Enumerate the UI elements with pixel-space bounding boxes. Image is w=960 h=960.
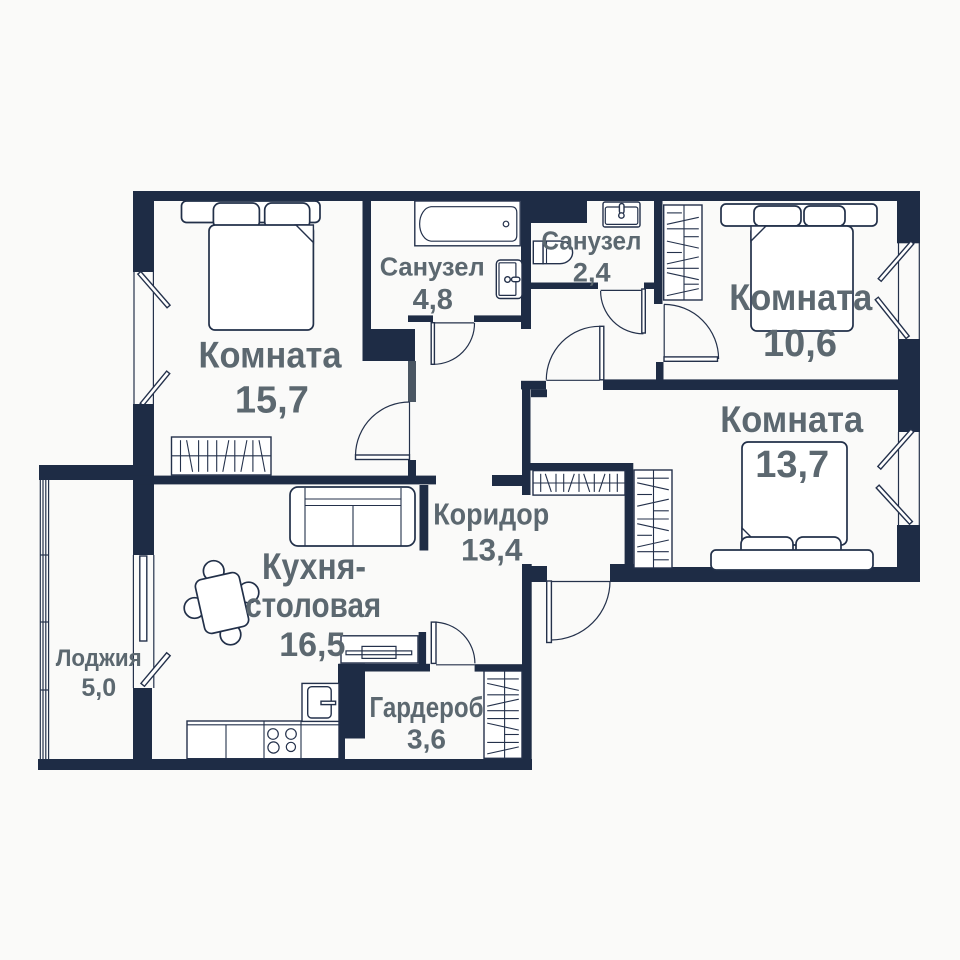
svg-text:13,4: 13,4 [461,532,523,568]
svg-text:5,0: 5,0 [81,674,116,702]
svg-text:3,6: 3,6 [407,724,446,755]
svg-text:Комната: Комната [199,333,343,375]
svg-text:Комната: Комната [729,276,873,318]
svg-text:Санузел: Санузел [380,251,485,281]
svg-text:столовая: столовая [245,586,381,625]
svg-text:10,6: 10,6 [763,323,837,365]
svg-text:16,5: 16,5 [279,626,345,664]
svg-text:Санузел: Санузел [542,225,642,255]
svg-text:2,4: 2,4 [573,258,611,288]
svg-text:Комната: Комната [720,398,864,440]
svg-text:13,7: 13,7 [755,444,829,486]
svg-text:Лоджия: Лоджия [56,645,142,672]
svg-text:Коридор: Коридор [433,498,549,532]
svg-text:Кухня-: Кухня- [262,546,366,587]
svg-text:15,7: 15,7 [235,379,309,421]
svg-text:4,8: 4,8 [413,284,453,316]
svg-text:Гардероб: Гардероб [370,692,484,724]
